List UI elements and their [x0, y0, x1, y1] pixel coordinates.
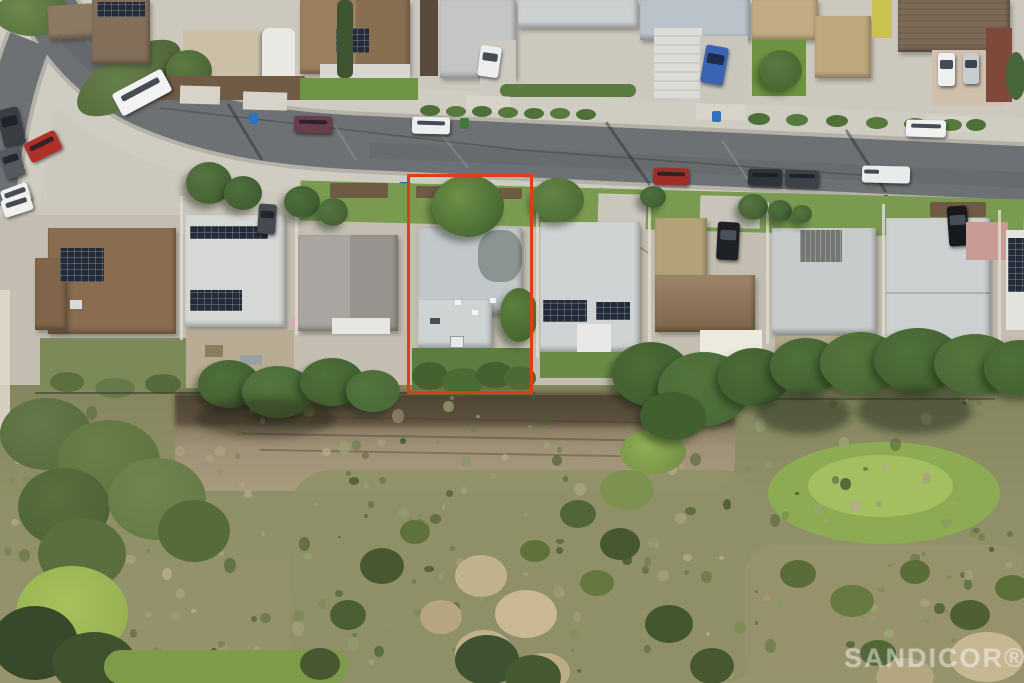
ground-speckle	[322, 448, 332, 456]
ground-speckle	[523, 572, 528, 576]
ground-speckle	[951, 502, 954, 505]
ground-speckle	[260, 613, 271, 623]
ground-speckle	[191, 609, 196, 613]
aerial-photo: SANDICOR®	[0, 0, 1024, 683]
ground-speckle	[430, 514, 441, 524]
ground-speckle	[560, 591, 566, 596]
ground-speckle	[557, 447, 563, 454]
tree-shadow	[856, 388, 972, 434]
ground-speckle	[863, 467, 868, 471]
ground-speckle	[349, 509, 357, 516]
bush	[950, 600, 990, 630]
ground-speckle	[502, 454, 508, 461]
ground-speckle	[763, 594, 771, 602]
ground-speckle	[684, 570, 689, 575]
rim-tree-cluster	[640, 392, 706, 440]
ground-speckle	[476, 415, 480, 418]
ground-speckle	[1005, 562, 1014, 568]
ground-speckle	[439, 574, 443, 579]
ground-speckle	[381, 618, 391, 629]
bush	[300, 648, 340, 680]
ground-speckle	[130, 629, 137, 638]
ground-speckle	[878, 587, 885, 592]
ground-speckle	[214, 447, 226, 456]
ground-speckle	[832, 476, 840, 485]
ground-speckle	[973, 528, 980, 533]
ground-speckle	[922, 552, 926, 556]
ground-speckle	[755, 621, 758, 625]
ground-speckle	[206, 455, 213, 463]
ground-speckle	[574, 483, 586, 495]
bush	[560, 500, 596, 528]
ground-speckle	[719, 556, 724, 560]
ground-speckle	[770, 514, 780, 526]
ground-speckle	[480, 597, 484, 601]
ground-speckle	[369, 659, 374, 666]
ground-speckle	[292, 621, 304, 636]
ground-speckle	[934, 603, 944, 615]
ground-speckle	[723, 499, 731, 509]
ground-speckle	[335, 590, 343, 598]
bush	[900, 560, 930, 584]
ground-speckle	[642, 566, 649, 574]
ground-speckle	[314, 503, 318, 506]
ground-speckle	[888, 564, 891, 567]
ground-speckle	[813, 504, 823, 515]
ground-speckle	[685, 507, 696, 515]
ground-speckle	[170, 612, 181, 620]
ground-speckle	[450, 396, 454, 400]
ground-speckle	[884, 629, 893, 639]
ground-speckle	[162, 568, 172, 580]
ground-speckle	[339, 441, 351, 455]
dirt-patch	[495, 590, 557, 638]
ground-speckle	[622, 613, 630, 623]
ground-speckle	[644, 645, 651, 653]
ground-speckle	[235, 511, 243, 518]
ground-speckle	[19, 549, 31, 562]
ground-speckle	[461, 456, 470, 467]
ground-speckle	[392, 636, 399, 641]
bush	[690, 648, 734, 683]
ground-speckle	[890, 438, 901, 451]
ground-speckle	[392, 409, 404, 423]
ground-speckle	[923, 614, 931, 624]
ground-speckle	[362, 452, 370, 459]
ground-speckle	[239, 482, 246, 487]
bush	[330, 600, 366, 630]
dirt-patch	[455, 555, 507, 597]
ground-speckle	[710, 487, 721, 495]
ground-speckle	[435, 475, 441, 480]
bush	[995, 575, 1024, 601]
ground-speckle	[680, 464, 684, 469]
ground-speckle	[782, 511, 790, 521]
ground-speckle	[755, 590, 758, 593]
ground-speckle	[303, 553, 312, 560]
ground-speckle	[11, 519, 19, 526]
ground-speckle	[175, 446, 185, 456]
ground-speckle	[125, 555, 136, 564]
ground-speckle	[528, 425, 532, 430]
rim-trees	[346, 370, 400, 412]
ground-speckle	[644, 557, 651, 565]
ground-speckle	[765, 461, 774, 468]
ground-speckle	[398, 508, 410, 518]
bright-bush	[600, 470, 654, 510]
ground-speckle	[412, 579, 416, 584]
ground-speckle	[655, 543, 659, 548]
ground-speckle	[745, 467, 752, 473]
ground-speckle	[945, 610, 950, 615]
ground-speckle	[876, 501, 883, 507]
ground-speckle	[1007, 531, 1013, 537]
ground-speckle	[176, 589, 185, 599]
ground-speckle	[217, 468, 223, 476]
ground-speckle	[977, 401, 982, 406]
ground-speckle	[346, 471, 352, 476]
ground-speckle	[839, 437, 850, 447]
ground-speckle	[850, 500, 860, 512]
ground-speckle	[556, 539, 564, 545]
watermark: SANDICOR®	[844, 643, 1024, 674]
ground-speckle	[461, 487, 467, 494]
ground-speckle	[978, 533, 986, 541]
ground-speckle	[147, 549, 151, 553]
dirt-patch	[420, 600, 462, 634]
ground-speckle	[235, 453, 240, 459]
ground-speckle	[552, 455, 562, 467]
ground-speckle	[377, 439, 386, 447]
ground-speckle	[577, 669, 581, 673]
ground-speckle	[882, 464, 889, 472]
ground-speckle	[543, 442, 550, 448]
ground-speckle	[573, 612, 581, 622]
ground-speckle	[352, 440, 361, 451]
ground-speckle	[261, 531, 265, 536]
bush	[580, 570, 614, 596]
ground-speckle	[532, 396, 535, 398]
ground-speckle	[571, 649, 574, 651]
ground-speckle	[683, 554, 692, 560]
bush	[520, 540, 550, 562]
ground-speckle	[436, 440, 440, 443]
ground-speckle	[417, 514, 423, 518]
shrub-mass	[158, 500, 230, 562]
ground-speckle	[922, 473, 932, 484]
ground-speckle	[293, 610, 304, 622]
ground-speckle	[556, 439, 559, 442]
ground-speckle	[795, 492, 799, 495]
ground-speckle	[450, 546, 455, 552]
ground-speckle	[947, 575, 953, 579]
ground-speckle	[424, 566, 434, 573]
ground-speckle	[775, 600, 783, 609]
ground-speckle	[657, 570, 668, 581]
ground-speckle	[971, 411, 982, 419]
ground-speckle	[491, 473, 497, 479]
bush	[400, 520, 430, 544]
ground-speckle	[224, 558, 236, 573]
bush	[645, 605, 693, 643]
ground-speckle	[374, 646, 384, 657]
ground-speckle	[145, 612, 152, 618]
ground-speckle	[765, 639, 776, 652]
ground-speckle	[920, 599, 930, 607]
ground-speckle	[734, 621, 746, 634]
ground-speckle	[299, 537, 310, 551]
ground-speckle	[989, 547, 995, 552]
ground-speckle	[348, 637, 359, 651]
bush	[600, 528, 640, 560]
ground-speckle	[446, 490, 453, 496]
ground-speckle	[964, 570, 973, 581]
ground-speckle	[368, 501, 374, 507]
ground-speckle	[338, 536, 341, 539]
ground-speckle	[9, 477, 15, 483]
ground-speckle	[397, 541, 407, 552]
ground-speckle	[563, 476, 569, 482]
ground-speckle	[162, 558, 169, 566]
ground-speckle	[592, 450, 598, 454]
tree-shadow	[196, 398, 336, 438]
ground-speckle	[4, 547, 12, 556]
ground-speckle	[379, 477, 387, 484]
ground-speckle	[964, 579, 973, 590]
ground-speckle	[442, 505, 446, 510]
ground-speckle	[941, 519, 952, 528]
ground-speckle	[556, 547, 563, 555]
ground-speckle	[349, 477, 359, 485]
ground-speckle	[542, 416, 550, 426]
ground-speckle	[244, 490, 252, 498]
ground-speckle	[675, 513, 686, 524]
ground-speckle	[689, 486, 696, 494]
ground-speckle	[397, 590, 408, 603]
ground-speckle	[265, 624, 273, 633]
ground-speckle	[840, 478, 851, 491]
tree-shadow	[756, 392, 852, 434]
ground-speckle	[690, 453, 701, 466]
bush	[780, 560, 816, 588]
bush	[360, 548, 404, 584]
bush	[830, 585, 874, 617]
ground-speckle	[823, 519, 828, 523]
property-outline-rectangle	[407, 174, 533, 394]
ground-speckle	[319, 599, 326, 608]
ground-speckle	[400, 438, 406, 444]
ground-speckle	[523, 512, 528, 517]
ground-speckle	[366, 622, 372, 627]
ground-speckle	[706, 632, 710, 636]
ground-speckle	[443, 401, 454, 412]
ground-speckle	[569, 629, 580, 640]
ground-speckle	[364, 514, 369, 518]
ground-speckle	[470, 427, 477, 432]
ground-speckle	[929, 526, 933, 529]
ground-speckle	[870, 616, 877, 622]
ground-speckle	[363, 483, 368, 488]
ground-speckle	[701, 571, 712, 583]
ground-speckle	[251, 616, 256, 622]
ground-speckle	[959, 461, 964, 465]
